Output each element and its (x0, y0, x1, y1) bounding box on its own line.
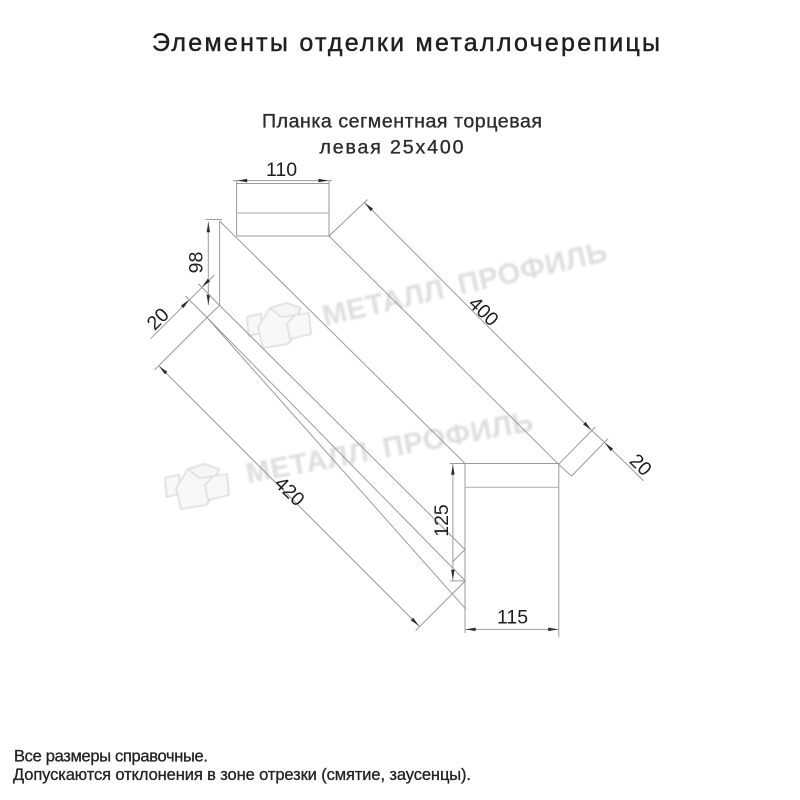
svg-text:115: 115 (497, 607, 528, 629)
svg-text:125: 125 (431, 504, 453, 537)
svg-text:98: 98 (186, 252, 208, 274)
svg-text:Допускаются отклонения в зоне: Допускаются отклонения в зоне отрезки (с… (13, 766, 471, 784)
svg-text:Планка сегментная торцевая: Планка сегментная торцевая (262, 111, 542, 133)
svg-text:110: 110 (266, 159, 297, 181)
svg-text:левая 25х400: левая 25х400 (320, 137, 464, 159)
svg-text:Элементы отделки металлочерепи: Элементы отделки металлочерепицы (152, 29, 660, 57)
svg-text:Все размеры справочные.: Все размеры справочные. (14, 747, 208, 765)
